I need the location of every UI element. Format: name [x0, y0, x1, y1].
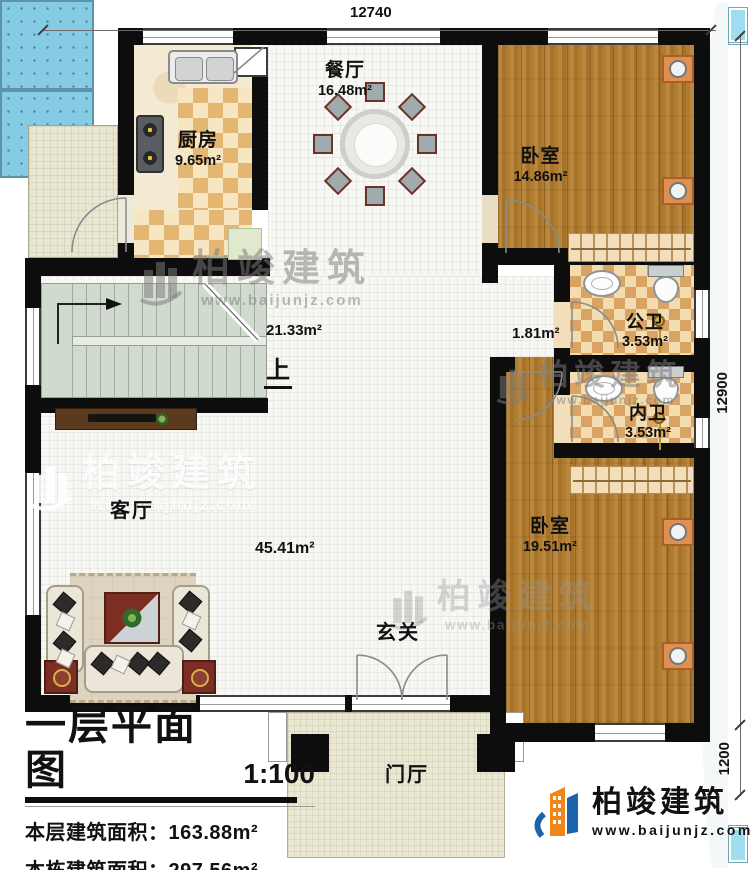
room-area: 3.53m² [600, 334, 690, 351]
room-area: 3.53m² [603, 425, 693, 442]
window-living-left [25, 473, 41, 615]
label-foyer: 门厅 [385, 758, 429, 787]
bed-top-bedroom [0, 0, 94, 90]
sink-basin [206, 57, 234, 81]
dimension-right: 12900 [714, 372, 731, 414]
room-name: 卧室 [498, 146, 583, 169]
console-plant [156, 413, 168, 425]
dining-chair [313, 134, 333, 154]
dimension-line-top [42, 30, 716, 31]
inner-bath-door-threshold [554, 395, 570, 443]
stat-label: 本层建筑面积： [25, 822, 169, 844]
stat-building-area: 本栋建筑面积：297.56m² [25, 854, 315, 870]
label-entry: 玄关 [376, 616, 420, 645]
room-area: 16.48m² [305, 83, 385, 100]
dining-chair [417, 134, 437, 154]
wall-kitchen-dining-divider [252, 60, 268, 210]
wall-right [694, 28, 710, 742]
title-underline [25, 797, 297, 803]
room-name: 餐厅 [305, 60, 385, 83]
inner-bath-toilet [648, 366, 684, 406]
nightstand [662, 55, 694, 83]
stove-burner [143, 151, 157, 165]
tv-console [55, 408, 197, 430]
brand-logo-icon [532, 782, 584, 844]
label-corridor-area: 1.81m² [512, 325, 560, 342]
public-bath-sink [583, 270, 621, 297]
label-public-bath: 公卫 3.53m² [600, 312, 690, 351]
kitchen-door-threshold [118, 195, 134, 243]
corner-window-kitchen [234, 47, 268, 77]
kitchen-mat [228, 228, 262, 260]
room-name: 卧室 [505, 516, 595, 539]
stat-value: 163.88m² [169, 822, 259, 844]
plan-title: 一层平面图 [25, 703, 229, 793]
title-block: 一层平面图 1:100 本层建筑面积：163.88m² 本栋建筑面积：297.5… [25, 703, 315, 870]
wall-left-c [25, 615, 41, 712]
room-area: 19.51m² [505, 539, 595, 556]
dining-table-top [354, 123, 398, 167]
public-bath-toilet [648, 265, 684, 305]
label-bedroom-top: 卧室 14.86m² [498, 146, 583, 186]
wall-left-b [25, 385, 41, 473]
room-area: 14.86m² [498, 169, 583, 186]
stair-steps-upper [72, 284, 267, 338]
nightstand [662, 518, 694, 546]
wall-kitchen-left-a [118, 45, 134, 195]
wall-living-bottom-c [448, 695, 490, 712]
entry-door-threshold [352, 695, 450, 712]
bedroom-top-door-threshold [482, 195, 498, 243]
title-underline-thin [25, 806, 315, 807]
brand-url: www.baijunjz.com [592, 822, 750, 838]
wall-left-a [25, 258, 41, 308]
label-hall-area: 21.33m² [266, 322, 322, 339]
brand-name: 柏竣建筑 [592, 788, 750, 818]
window-bedroom-bottom-south [595, 723, 665, 742]
tv-screen [88, 414, 156, 422]
room-area: 9.65m² [158, 153, 238, 170]
stove-burner [143, 123, 157, 137]
stat-label: 本栋建筑面积： [25, 860, 169, 870]
wardrobe-bottom-bedroom [570, 466, 694, 494]
wall-inner-bath-bottom [554, 443, 694, 458]
label-inner-bath: 内卫 3.53m² [603, 403, 693, 442]
wall-inner-bath-left-a [554, 372, 570, 395]
window-stairs-left [25, 308, 41, 385]
wall-dining-bedroom-a [482, 28, 498, 195]
room-name: 厨房 [158, 130, 238, 153]
side-terrace-floor [28, 125, 118, 258]
foyer-pillar-right [477, 734, 515, 772]
staircase [41, 283, 267, 398]
dimension-top: 12740 [350, 4, 392, 21]
stair-landing-rail [72, 336, 267, 346]
stat-floor-area: 本层建筑面积：163.88m² [25, 816, 315, 845]
dimension-right-lower: 1200 [716, 742, 733, 775]
wall-public-bath-left-a [554, 265, 570, 302]
room-name: 公卫 [600, 312, 690, 334]
window-public-bath-right [694, 290, 710, 338]
nightstand [662, 642, 694, 670]
window-inner-bath-right [694, 418, 710, 448]
dining-table [340, 109, 410, 179]
wardrobe-top-bedroom [568, 233, 694, 262]
wall-kitchen-bottom [25, 258, 270, 276]
toilet-bowl [653, 377, 679, 404]
label-living-area: 45.41m² [255, 540, 315, 558]
inner-bath-sink [585, 375, 623, 402]
room-name: 内卫 [603, 403, 693, 425]
label-bedroom-bottom: 卧室 19.51m² [505, 516, 595, 556]
label-living-name: 客厅 [110, 494, 154, 523]
wall-bedroom-bottom-left [490, 357, 506, 742]
stair-steps-lower [72, 346, 267, 398]
toilet-bowl [653, 276, 679, 303]
nightstand [662, 177, 694, 205]
dining-chair [365, 186, 385, 206]
sink-basin [175, 57, 203, 81]
plan-scale: 1:100 [243, 758, 315, 793]
label-stairs-up: 上 [264, 350, 292, 389]
wall-dining-bedroom-b [482, 243, 498, 283]
kitchen-sink [168, 50, 238, 84]
brand-logo: 柏竣建筑 www.baijunjz.com [532, 782, 750, 844]
dimension-line-right [740, 36, 741, 726]
stat-value: 297.56m² [169, 860, 259, 870]
coffee-table-plant [121, 607, 143, 629]
label-kitchen: 厨房 9.65m² [158, 130, 238, 170]
end-table [182, 660, 216, 694]
floor-plan-canvas: 餐厅 16.48m² 厨房 9.65m² 卧室 14.86m² 21.33m² … [0, 0, 750, 870]
label-dining: 餐厅 16.48m² [305, 60, 385, 100]
